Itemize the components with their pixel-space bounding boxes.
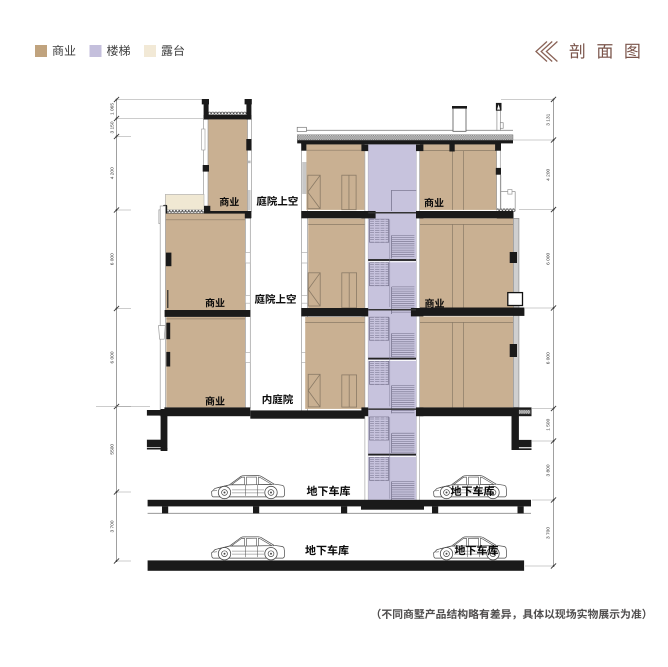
svg-text:6 000: 6 000 (546, 252, 552, 264)
svg-text:1 500: 1 500 (546, 418, 552, 430)
svg-text:4 200: 4 200 (546, 168, 552, 180)
svg-text:6 000: 6 000 (546, 352, 552, 364)
svg-text:3 131: 3 131 (546, 113, 552, 125)
svg-text:3 800: 3 800 (546, 464, 552, 476)
svg-text:3 150: 3 150 (110, 121, 116, 133)
svg-text:6 000: 6 000 (110, 351, 116, 363)
svg-text:1 065: 1 065 (110, 103, 116, 115)
svg-text:5500: 5500 (110, 444, 116, 455)
svg-text:3 700: 3 700 (546, 527, 552, 539)
svg-text:3 700: 3 700 (110, 520, 116, 532)
svg-text:4 200: 4 200 (110, 167, 116, 179)
svg-text:6 000: 6 000 (110, 253, 116, 265)
